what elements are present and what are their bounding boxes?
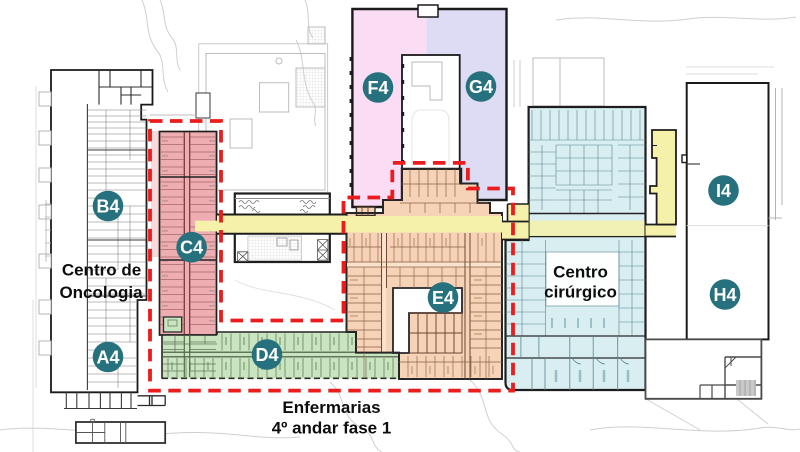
svg-text:G4: G4 bbox=[469, 77, 493, 97]
svg-text:H4: H4 bbox=[713, 285, 736, 305]
svg-text:Oncologia: Oncologia bbox=[59, 283, 143, 302]
svg-text:B4: B4 bbox=[96, 197, 119, 217]
svg-text:C4: C4 bbox=[180, 238, 203, 258]
svg-text:Enfermarias: Enfermarias bbox=[282, 398, 380, 417]
svg-text:A4: A4 bbox=[96, 348, 119, 368]
svg-text:I4: I4 bbox=[716, 181, 731, 201]
svg-text:F4: F4 bbox=[367, 78, 388, 98]
svg-text:Centro: Centro bbox=[553, 263, 608, 282]
svg-text:cirúrgico: cirúrgico bbox=[544, 283, 617, 302]
svg-text:4º andar fase 1: 4º andar fase 1 bbox=[272, 419, 392, 438]
svg-text:E4: E4 bbox=[432, 288, 454, 308]
svg-text:D4: D4 bbox=[255, 345, 278, 365]
svg-text:Centro de: Centro de bbox=[62, 261, 141, 280]
